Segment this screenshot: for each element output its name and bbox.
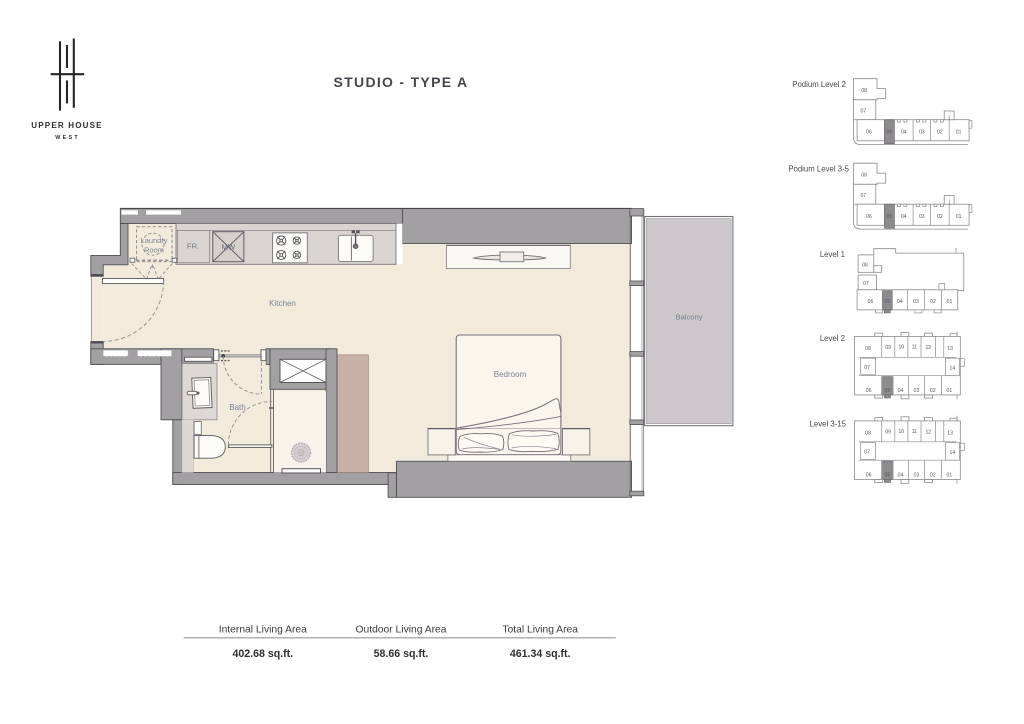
svg-text:02: 02 (937, 129, 943, 135)
svg-text:07: 07 (861, 108, 867, 114)
svg-text:STUDIO - TYPE A: STUDIO - TYPE A (334, 74, 469, 90)
svg-text:14: 14 (950, 366, 956, 372)
svg-text:58.66 sq.ft.: 58.66 sq.ft. (374, 648, 429, 660)
svg-text:02: 02 (930, 388, 936, 394)
svg-text:05: 05 (885, 388, 891, 394)
svg-text:11: 11 (912, 345, 917, 351)
svg-text:07: 07 (864, 365, 870, 371)
svg-text:Level 1: Level 1 (820, 250, 845, 259)
svg-text:05: 05 (887, 129, 893, 135)
svg-text:08: 08 (862, 262, 868, 268)
svg-text:03: 03 (914, 388, 920, 394)
svg-text:Laundry: Laundry (141, 236, 168, 245)
svg-text:12: 12 (925, 345, 931, 351)
svg-text:03: 03 (919, 129, 925, 135)
svg-text:03: 03 (913, 299, 919, 305)
svg-text:Kitchen: Kitchen (269, 299, 296, 308)
svg-text:Balcony: Balcony (675, 313, 702, 322)
svg-text:Bath: Bath (229, 403, 245, 412)
svg-text:Total Living Area: Total Living Area (502, 625, 578, 636)
svg-text:461.34 sq.ft.: 461.34 sq.ft. (510, 648, 571, 660)
svg-text:Room: Room (144, 245, 164, 254)
svg-text:FR.: FR. (187, 242, 199, 251)
svg-text:07: 07 (863, 281, 869, 287)
svg-text:08: 08 (861, 88, 867, 94)
svg-text:01: 01 (947, 388, 953, 394)
svg-text:13: 13 (947, 346, 953, 352)
svg-text:Bedroom: Bedroom (494, 370, 527, 379)
svg-text:06: 06 (866, 388, 872, 394)
svg-text:Podium Level 2: Podium Level 2 (792, 80, 846, 89)
svg-text:Level 3-15: Level 3-15 (810, 420, 847, 429)
svg-text:04: 04 (898, 388, 904, 394)
svg-text:02: 02 (930, 299, 936, 305)
svg-text:01: 01 (956, 129, 962, 135)
svg-text:04: 04 (901, 129, 907, 135)
svg-text:MW: MW (222, 242, 236, 251)
svg-text:09: 09 (885, 345, 891, 351)
svg-text:Level 2: Level 2 (820, 334, 845, 343)
svg-text:05: 05 (885, 299, 891, 305)
svg-text:06: 06 (866, 129, 872, 135)
svg-text:01: 01 (947, 299, 953, 305)
svg-text:10: 10 (898, 345, 904, 351)
svg-text:Internal Living Area: Internal Living Area (219, 625, 307, 636)
svg-text:04: 04 (897, 299, 903, 305)
svg-text:Outdoor Living Area: Outdoor Living Area (355, 625, 446, 636)
svg-text:06: 06 (868, 299, 874, 305)
svg-text:UPPER HOUSE: UPPER HOUSE (31, 121, 102, 130)
svg-text:Podium Level 3-5: Podium Level 3-5 (788, 165, 849, 174)
svg-text:WEST: WEST (55, 135, 80, 141)
svg-text:402.68 sq.ft.: 402.68 sq.ft. (232, 648, 293, 660)
svg-text:08: 08 (865, 346, 871, 352)
